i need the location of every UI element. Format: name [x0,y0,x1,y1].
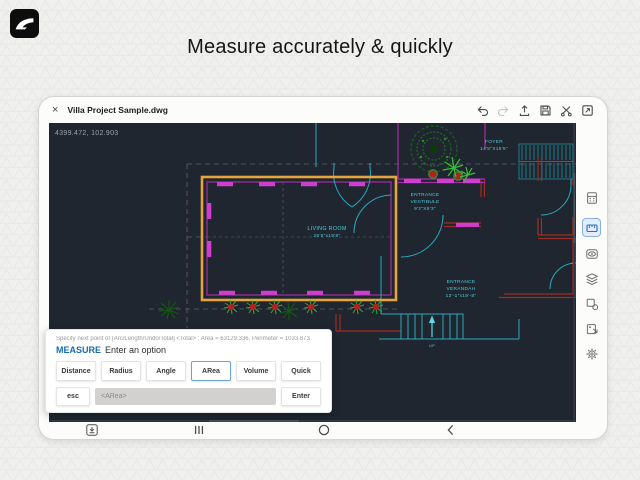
measure-panel: Specify next point or [Arc/Length/Undo/T… [45,329,332,413]
command-line: MEASUREEnter an option [56,345,321,355]
measure-tool-icon[interactable] [582,218,601,237]
palette-icon[interactable] [583,189,600,206]
back-icon[interactable] [444,423,458,437]
option-angle-button[interactable]: Angle [146,361,186,381]
close-document-icon[interactable]: × [52,105,58,116]
shrub-row [159,300,383,320]
document-title: Villa Project Sample.dwg [67,105,167,115]
verandah-label: ENTRANCE [447,279,476,285]
snip-icon[interactable] [560,104,573,117]
settings-icon[interactable] [583,345,600,362]
save-icon[interactable] [539,104,552,117]
command-input[interactable] [95,388,276,405]
android-navbar [39,422,607,439]
svg-text:VESTIBULE: VESTIBULE [410,199,439,205]
option-radius-button[interactable]: Radius [101,361,141,381]
measured-area-selection [202,177,396,300]
vestibule-label: ENTRANCE [411,192,440,198]
living-room-label: LIVING ROOM [307,226,346,232]
option-volume-button[interactable]: Volume [236,361,276,381]
esc-button[interactable]: esc [56,387,90,406]
command-name: MEASURE [56,345,101,355]
option-quick-button[interactable]: Quick [281,361,321,381]
foyer-label: FOYER [485,139,503,145]
magenta-walls [207,123,485,295]
layers-icon[interactable] [583,270,600,287]
palm-plants [429,157,475,181]
enter-button[interactable]: Enter [281,387,321,406]
option-area-button[interactable]: ARea [191,361,231,381]
export-icon[interactable] [583,320,600,337]
svg-text:14'5"X15'9": 14'5"X15'9" [480,146,508,152]
views-eye-icon[interactable] [583,245,600,262]
redo-icon[interactable] [497,104,510,117]
screen-capture-icon[interactable] [85,423,99,437]
construction-guides [149,164,576,328]
option-distance-button[interactable]: Distance [56,361,96,381]
undo-icon[interactable] [476,104,489,117]
recents-icon[interactable] [192,423,206,437]
measure-options: Distance Radius Angle ARea Volume Quick [56,361,321,381]
tablet-mockup: × Villa Project Sample.dwg [38,96,608,440]
fullscreen-icon[interactable] [581,104,594,117]
command-instruction: Enter an option [105,345,166,355]
stairs-up-arrow [429,316,435,338]
blocks-icon[interactable] [583,295,600,312]
publish-icon[interactable] [518,104,531,117]
up-label: UP [429,343,435,348]
svg-text:12'-1"x19'-8": 12'-1"x19'-8" [446,293,477,299]
page-title: Measure accurately & quickly [0,36,640,59]
svg-text:9'2"X9'3": 9'2"X9'3" [414,206,436,212]
tool-sidebar [576,123,607,422]
command-prompt-text: Specify next point or [Arc/Length/Undo/T… [56,336,321,342]
document-titlebar: × Villa Project Sample.dwg [39,97,607,123]
svg-text:VERANDAH: VERANDAH [446,286,475,292]
svg-text:25'5"x19'9": 25'5"x19'9" [314,233,341,239]
cursor-coordinates: 4399.472, 102.903 [55,130,119,137]
autodesk-logo-icon [10,9,39,38]
home-icon[interactable] [317,423,331,437]
closet-hatch [519,144,573,179]
